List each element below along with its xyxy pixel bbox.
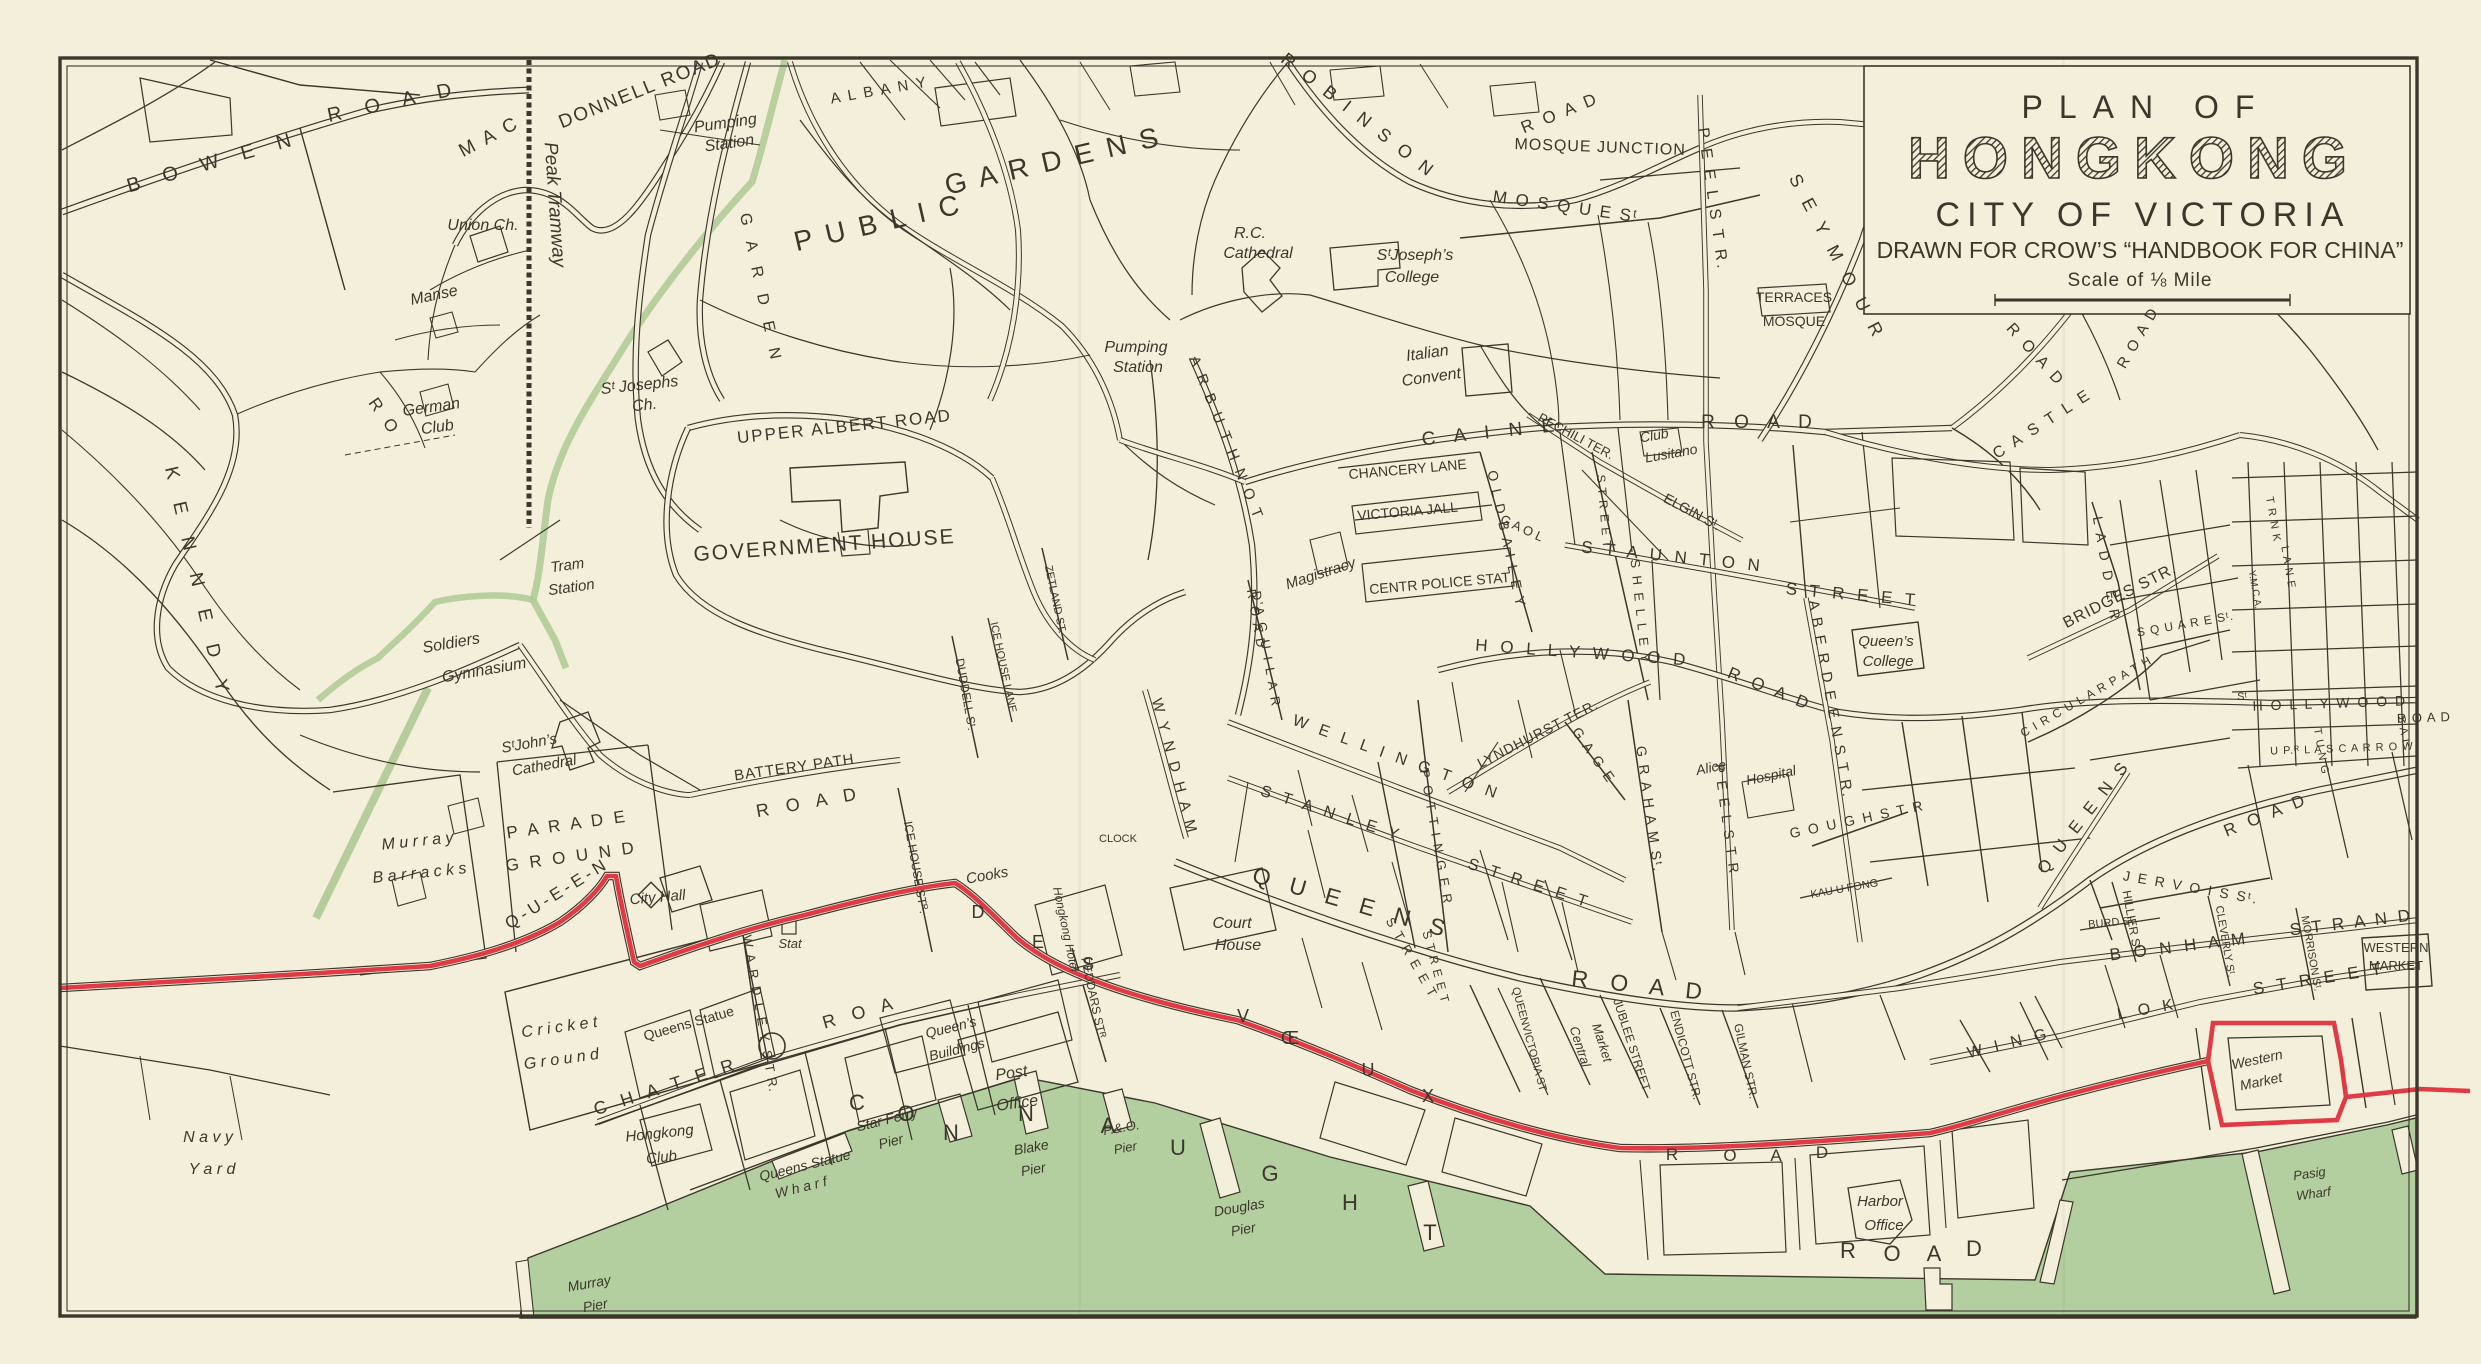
svg-text:C: C <box>849 1090 865 1115</box>
svg-text:A: A <box>1101 1113 1116 1138</box>
svg-text:Station: Station <box>1113 359 1163 376</box>
svg-text:D: D <box>1816 1143 1828 1162</box>
svg-text:DRAWN FOR CROW’S “HANDBOOK FOR: DRAWN FOR CROW’S “HANDBOOK FOR CHINA” <box>1877 237 2404 263</box>
svg-text:D: D <box>972 902 985 922</box>
svg-text:O: O <box>1723 1146 1736 1165</box>
svg-text:X: X <box>1422 1086 1434 1106</box>
svg-text:Office: Office <box>1864 1217 1903 1234</box>
svg-text:N: N <box>1018 1101 1034 1126</box>
svg-text:Y a r d: Y a r d <box>189 1161 237 1178</box>
svg-text:WESTERN: WESTERN <box>2364 940 2429 955</box>
svg-text:PLAN OF: PLAN OF <box>2022 89 2271 125</box>
svg-text:Scale of ⅛ Mile: Scale of ⅛ Mile <box>2068 270 2213 291</box>
svg-text:O: O <box>897 1101 914 1126</box>
svg-text:A: A <box>1770 1146 1782 1165</box>
svg-text:College: College <box>1385 269 1439 286</box>
svg-text:S: S <box>1082 954 1094 974</box>
svg-text:R: R <box>1666 1145 1678 1164</box>
svg-text:A: A <box>1927 1241 1942 1266</box>
svg-text:Court: Court <box>1212 915 1252 932</box>
svg-text:U: U <box>1170 1135 1186 1160</box>
svg-text:T: T <box>1423 1220 1436 1245</box>
svg-text:Cathedral: Cathedral <box>1223 245 1293 262</box>
svg-text:Union Ch.: Union Ch. <box>447 217 518 234</box>
svg-text:College: College <box>1863 653 1914 670</box>
svg-text:TERRACES: TERRACES <box>1756 289 1832 305</box>
svg-text:U: U <box>1362 1060 1375 1080</box>
svg-text:R: R <box>1840 1238 1856 1263</box>
svg-text:Harbor: Harbor <box>1857 1193 1904 1210</box>
svg-text:Club: Club <box>645 1147 677 1167</box>
svg-text:Œ: Œ <box>1281 1028 1299 1048</box>
svg-text:Sᵗ: Sᵗ <box>2237 691 2247 703</box>
svg-text:N: N <box>943 1120 959 1145</box>
svg-text:R.C.: R.C. <box>1234 225 1266 242</box>
svg-text:House: House <box>1215 937 1261 954</box>
svg-text:HONGKONG: HONGKONG <box>1908 126 2360 191</box>
svg-text:G: G <box>1261 1161 1278 1186</box>
svg-text:Stat: Stat <box>778 936 803 951</box>
svg-text:H: H <box>1342 1190 1358 1215</box>
svg-text:Ch.: Ch. <box>631 396 658 416</box>
svg-text:O: O <box>1883 1241 1900 1266</box>
svg-text:R O A D: R O A D <box>1701 412 1819 433</box>
svg-text:Pumping: Pumping <box>1104 339 1167 356</box>
svg-text:CITY OF VICTORIA: CITY OF VICTORIA <box>1936 196 2351 234</box>
svg-text:MOSQUE: MOSQUE <box>1763 313 1825 329</box>
svg-text:V: V <box>1237 1006 1249 1026</box>
svg-text:Queen’s: Queen’s <box>1858 633 1914 650</box>
svg-text:D: D <box>1966 1236 1982 1261</box>
svg-text:E: E <box>1032 932 1044 952</box>
svg-text:N a v y: N a v y <box>183 1129 234 1146</box>
svg-text:CLOCK: CLOCK <box>1099 833 1138 845</box>
svg-text:SᵗJoseph’s: SᵗJoseph’s <box>1377 247 1454 264</box>
